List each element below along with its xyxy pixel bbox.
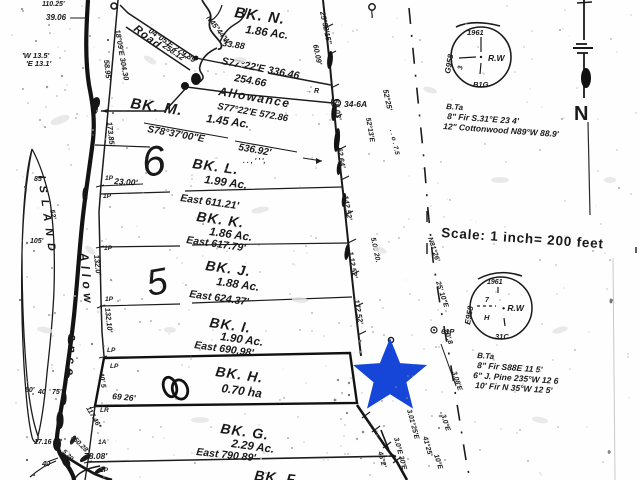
svg-text:• R.W: • R.W (502, 303, 525, 313)
svg-text:1A: 1A (98, 439, 107, 446)
svg-text:B1G: B1G (473, 80, 489, 89)
svg-text:40: 40 (37, 389, 46, 396)
svg-text:110.25': 110.25' (42, 1, 65, 8)
svg-text:LR: LR (100, 407, 109, 414)
svg-text:1P: 1P (104, 245, 113, 252)
svg-text:85': 85' (34, 176, 44, 183)
svg-text:N: N (574, 103, 588, 125)
svg-text:LP: LP (110, 363, 119, 370)
svg-text:31C: 31C (495, 332, 509, 341)
svg-text:1961: 1961 (467, 28, 484, 37)
svg-text:17.16: 17.16 (34, 439, 52, 446)
svg-text:69 26': 69 26' (112, 391, 137, 403)
svg-text:1961: 1961 (487, 279, 503, 286)
svg-text:40: 40 (41, 459, 51, 468)
svg-text:1P: 1P (103, 193, 112, 200)
svg-text:105': 105' (30, 238, 44, 245)
svg-text:'E 13.1': 'E 13.1' (26, 59, 51, 68)
svg-text:34-6A: 34-6A (344, 99, 367, 109)
svg-text:→ R: → R (305, 88, 319, 95)
svg-text:60': 60' (25, 387, 35, 394)
svg-text:1P: 1P (105, 175, 114, 182)
svg-text:R.W: R.W (488, 53, 506, 63)
svg-text:. . , ' ' ',: . . , ' ' ', (243, 158, 266, 165)
svg-text:LP: LP (107, 347, 116, 354)
svg-text:75': 75' (52, 389, 62, 396)
svg-text:1P: 1P (105, 296, 114, 303)
svg-text:H: H (484, 313, 490, 322)
svg-text:39.06: 39.06 (46, 13, 67, 22)
